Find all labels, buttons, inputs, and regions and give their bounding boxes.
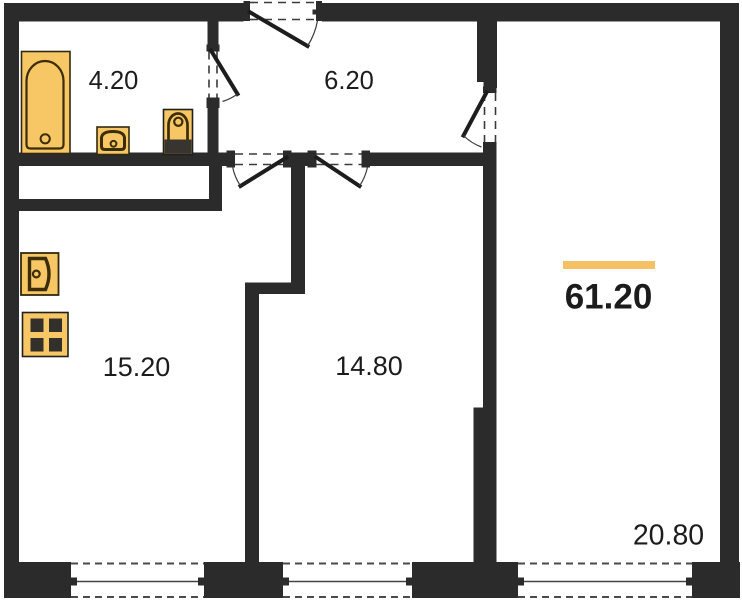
svg-text:4.20: 4.20 <box>89 67 139 95</box>
svg-text:14.80: 14.80 <box>335 351 403 381</box>
svg-text:61.20: 61.20 <box>565 278 653 317</box>
svg-text:20.80: 20.80 <box>633 520 704 552</box>
svg-text:6.20: 6.20 <box>324 67 374 95</box>
svg-text:15.20: 15.20 <box>103 352 171 382</box>
